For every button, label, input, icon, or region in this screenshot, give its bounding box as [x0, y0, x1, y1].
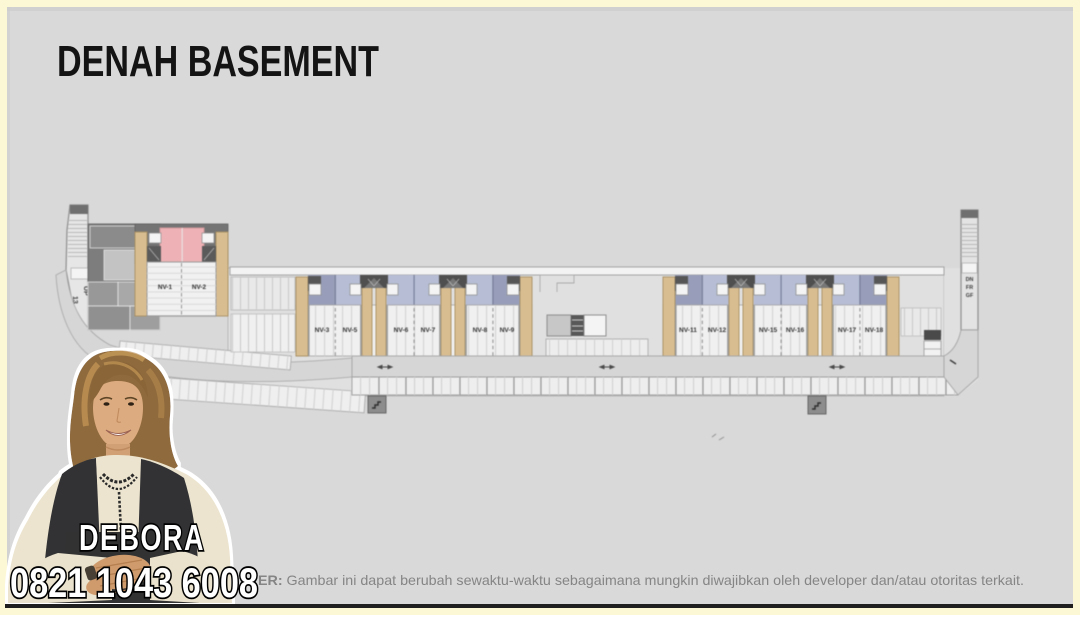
svg-text:NV-18: NV-18	[865, 327, 884, 334]
svg-text:NV-11: NV-11	[679, 327, 697, 334]
svg-text:NV-15: NV-15	[759, 327, 778, 334]
svg-text:NV-2: NV-2	[192, 284, 207, 291]
svg-text:NV-1: NV-1	[158, 284, 173, 291]
svg-text:DEBORA: DEBORA	[79, 517, 205, 558]
svg-text:ER: Gambar ini dapat berubah s: ER: Gambar ini dapat berubah sewaktu-wak…	[258, 573, 1024, 588]
svg-text:NV-16: NV-16	[786, 327, 805, 334]
svg-text:NV-6: NV-6	[394, 327, 409, 334]
svg-text:FR: FR	[966, 285, 973, 291]
svg-text:NV-7: NV-7	[421, 327, 436, 334]
svg-text:NV-3: NV-3	[315, 327, 330, 334]
svg-text:0821 1043 6008: 0821 1043 6008	[10, 559, 258, 606]
svg-text:GF: GF	[966, 293, 974, 299]
svg-text:DENAH BASEMENT: DENAH BASEMENT	[57, 37, 379, 86]
svg-text:NV-8: NV-8	[473, 327, 488, 334]
svg-text:NV-5: NV-5	[343, 327, 358, 334]
svg-text:NV-9: NV-9	[500, 327, 515, 334]
svg-text:DN: DN	[966, 277, 974, 283]
svg-text:NV-12: NV-12	[708, 327, 727, 334]
svg-text:NV-17: NV-17	[838, 327, 857, 334]
